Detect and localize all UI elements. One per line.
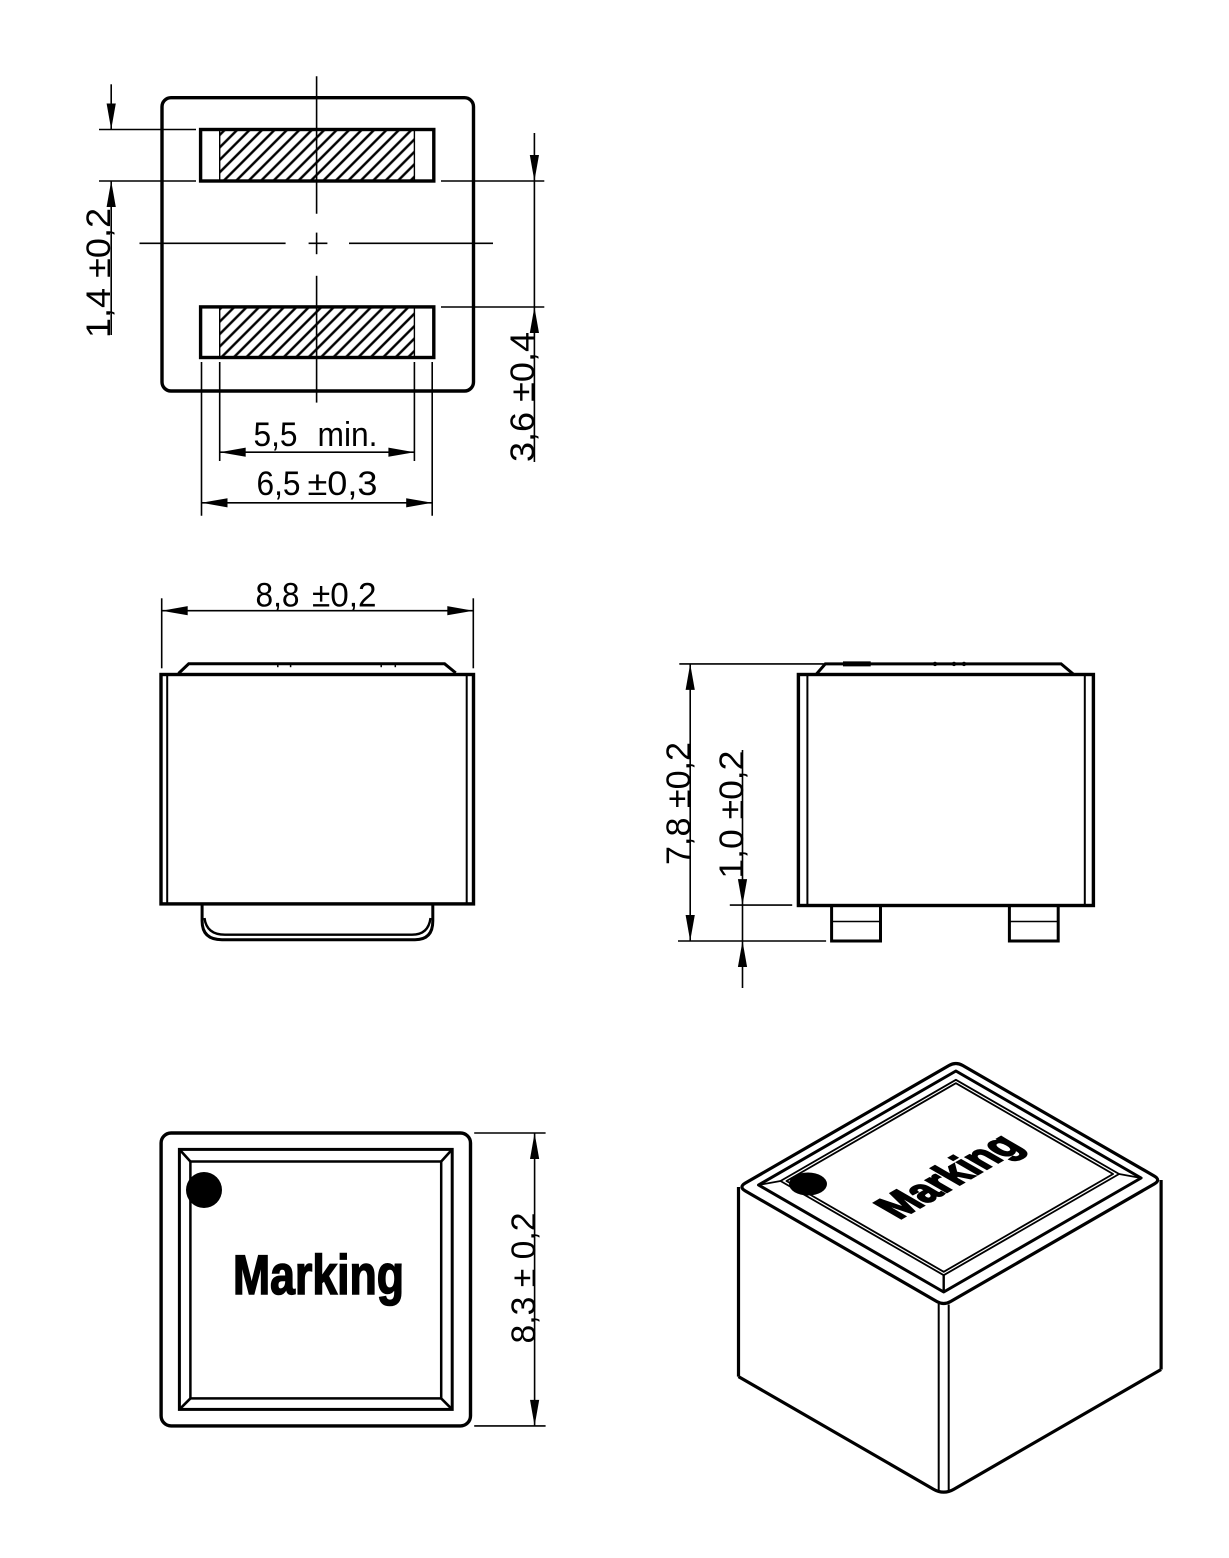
svg-text:6,5: 6,5 bbox=[257, 465, 301, 503]
svg-text:8,3 ± 0,2: 8,3 ± 0,2 bbox=[505, 1213, 543, 1344]
svg-text:1,0 ±0,2: 1,0 ±0,2 bbox=[713, 751, 751, 879]
svg-text:Marking: Marking bbox=[233, 1243, 404, 1306]
svg-text:3,6 ±0,4: 3,6 ±0,4 bbox=[504, 332, 542, 462]
svg-text:8,8: 8,8 bbox=[256, 576, 300, 614]
svg-text:±0,2: ±0,2 bbox=[312, 576, 377, 614]
svg-text:min.: min. bbox=[318, 416, 378, 454]
svg-text:5,5: 5,5 bbox=[254, 416, 298, 454]
svg-text:7,8 ±0,2: 7,8 ±0,2 bbox=[660, 742, 698, 865]
svg-text:±0,3: ±0,3 bbox=[308, 465, 378, 503]
svg-text:1,4 ±0,2: 1,4 ±0,2 bbox=[80, 208, 118, 338]
